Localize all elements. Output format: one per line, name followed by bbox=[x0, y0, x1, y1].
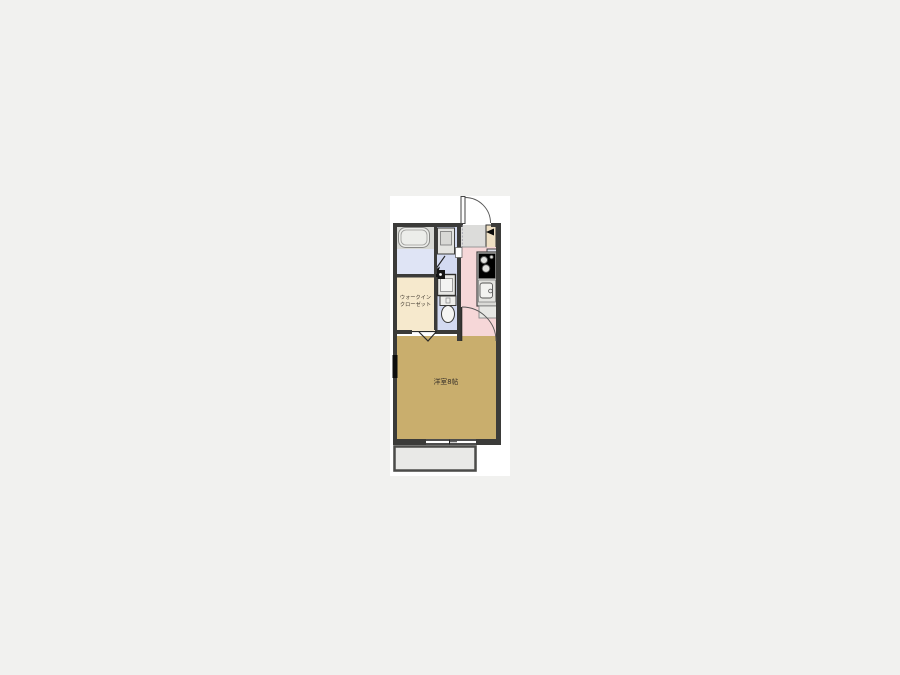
kitchen-stove bbox=[479, 254, 496, 279]
entrance-floor bbox=[460, 225, 487, 247]
walk-in-closet-label-line2: クローゼット bbox=[400, 300, 431, 308]
floor-plan-panel: ウォークイン クローゼット 洋室8帖 bbox=[390, 196, 510, 476]
bathtub bbox=[399, 228, 430, 248]
washroom-sliding-door bbox=[456, 248, 463, 258]
kitchen-sink bbox=[479, 280, 496, 302]
main-room-label: 洋室8帖 bbox=[434, 377, 459, 386]
kitchen-counter bbox=[477, 252, 497, 318]
floor-plan: ウォークイン クローゼット 洋室8帖 bbox=[390, 196, 510, 476]
washing-machine bbox=[438, 228, 455, 254]
left-wall-window bbox=[393, 355, 398, 378]
entry-door bbox=[461, 197, 491, 224]
entrance-side-cabinet bbox=[486, 225, 496, 248]
balcony-window bbox=[426, 440, 476, 444]
balcony-floor bbox=[393, 445, 477, 472]
counter-end bbox=[479, 306, 497, 318]
toilet bbox=[440, 296, 456, 323]
main-room-floor bbox=[396, 336, 496, 440]
walk-in-closet-label-line1: ウォークイン bbox=[400, 293, 431, 301]
